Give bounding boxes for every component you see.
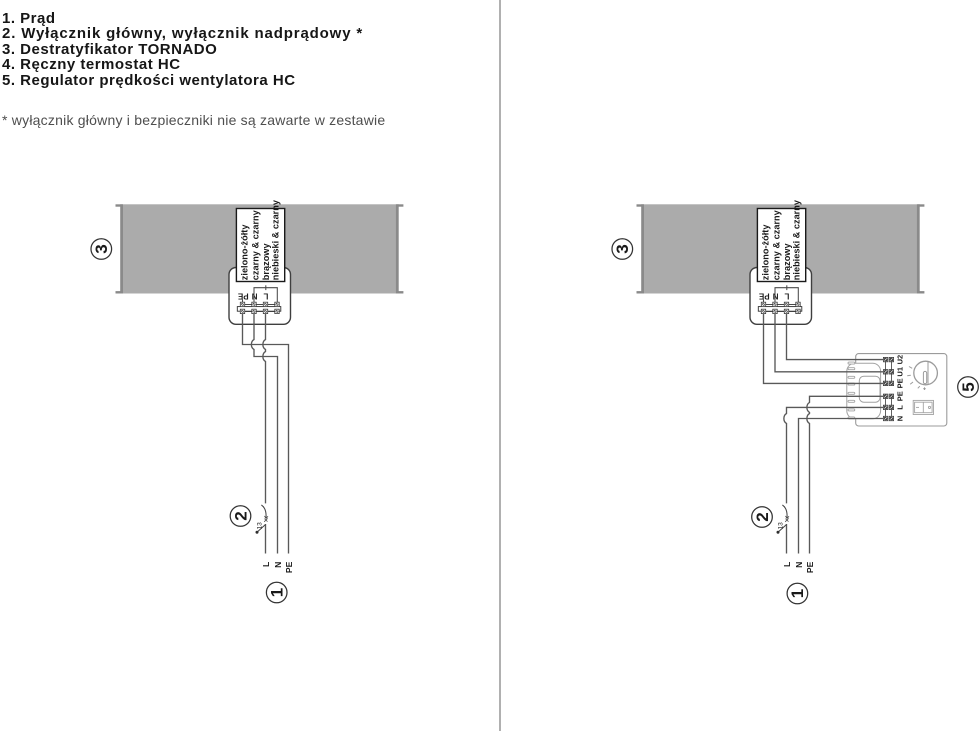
svg-text:U2: U2	[896, 355, 905, 365]
svg-text:3: 3	[92, 244, 111, 253]
svg-text:1: 1	[268, 588, 287, 597]
svg-text:5: 5	[959, 382, 978, 391]
svg-text:N: N	[273, 562, 283, 568]
svg-text:13: 13	[778, 522, 785, 530]
svg-text:13: 13	[257, 522, 264, 530]
svg-text:L: L	[261, 562, 271, 567]
svg-text:czarny & czarny: czarny & czarny	[250, 209, 260, 280]
svg-text:U1: U1	[896, 367, 905, 377]
svg-text:PE: PE	[896, 378, 905, 388]
svg-text:niebieski & czarny: niebieski & czarny	[791, 199, 801, 280]
svg-text:brązowy: brązowy	[261, 243, 271, 281]
svg-text:zielono-żółty: zielono-żółty	[240, 224, 250, 281]
svg-text:PE: PE	[284, 561, 294, 573]
svg-text:1: 1	[788, 589, 807, 598]
svg-text:L: L	[784, 292, 789, 301]
svg-text:L: L	[782, 562, 792, 567]
svg-text:PE: PE	[896, 391, 905, 401]
svg-text:N: N	[896, 416, 905, 421]
svg-text:PE: PE	[758, 292, 769, 301]
svg-text:2: 2	[753, 512, 772, 521]
svg-text:3: 3	[613, 244, 632, 253]
svg-text:L: L	[896, 405, 905, 410]
svg-text:niebieski & czarny: niebieski & czarny	[270, 199, 280, 280]
svg-text:zielono-żółty: zielono-żółty	[761, 224, 771, 281]
svg-text:brązowy: brązowy	[782, 243, 792, 281]
svg-text:2: 2	[231, 511, 250, 520]
svg-text:PE: PE	[237, 292, 248, 301]
svg-text:PE: PE	[805, 561, 815, 573]
svg-text:czarny & czarny: czarny & czarny	[771, 209, 781, 280]
svg-text:L: L	[263, 292, 268, 301]
svg-text:N: N	[794, 562, 804, 568]
